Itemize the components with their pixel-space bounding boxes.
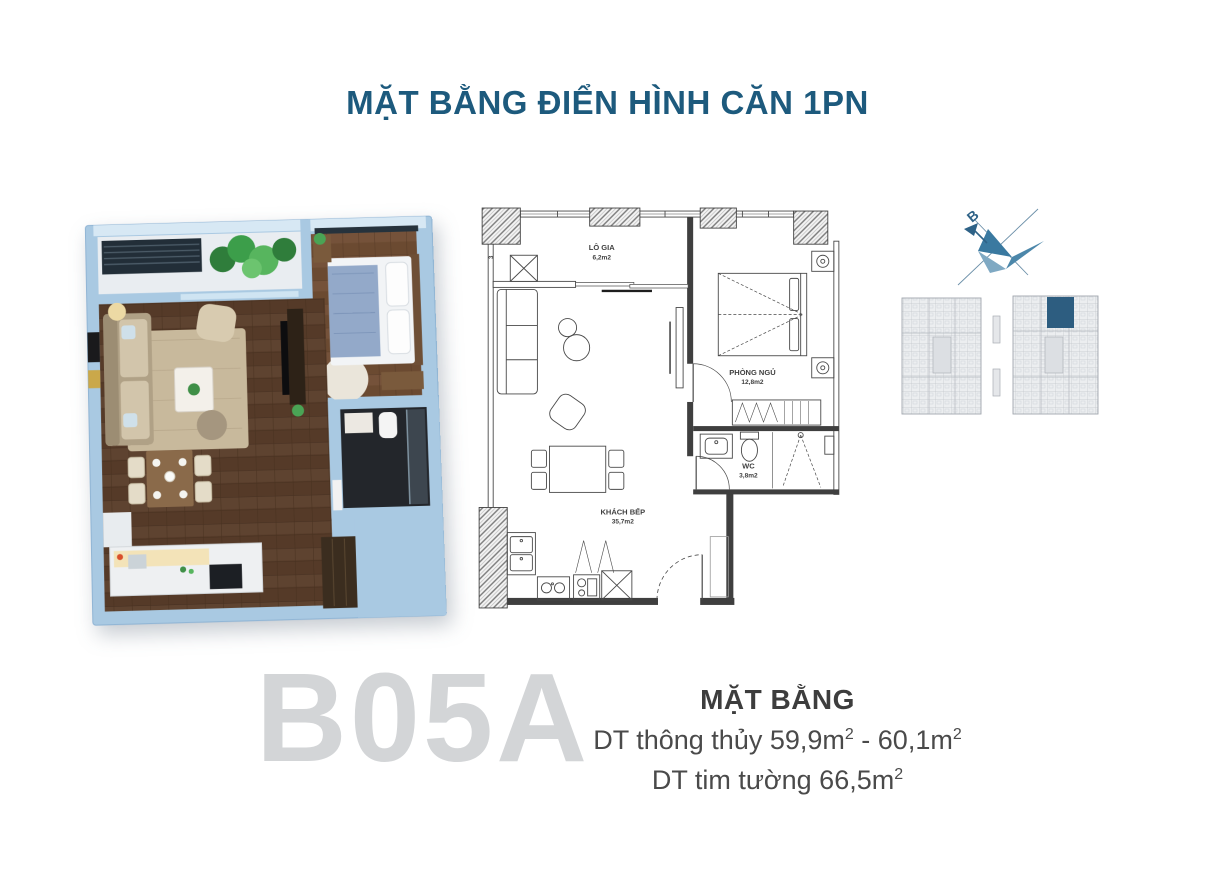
page-title: MẶT BẰNG ĐIỂN HÌNH CĂN 1PN [0, 84, 1215, 122]
north-arrow-icon: B [954, 203, 1046, 293]
logia-label: LÔ GIA [589, 243, 615, 252]
bedroom-label: PHÒNG NGỦ [729, 368, 775, 377]
tower-left [902, 298, 981, 414]
logia-area: 6,2m2 [592, 254, 611, 261]
wardrobe-2d [732, 400, 820, 425]
unit-code: B05A [248, 652, 598, 784]
wall-area-sup: 2 [894, 766, 903, 783]
summary-heading: MẶT BẰNG [575, 684, 980, 716]
floorplan-sheet: MẶT BẰNG ĐIỂN HÌNH CĂN 1PN [0, 0, 1215, 887]
kitchen-2d [507, 533, 632, 600]
living-area: 35,7m2 [612, 519, 634, 526]
highlighted-unit [1047, 297, 1074, 328]
compass: B [954, 203, 1046, 293]
lower-right-wall [355, 515, 447, 617]
living-room-3d [99, 297, 334, 612]
bed-2d [718, 251, 834, 378]
apartment-3d-svg [79, 206, 455, 633]
wc-label: WC [742, 461, 755, 470]
wc-area: 3,8m2 [739, 472, 758, 479]
living-label: KHÁCH BẾP [600, 507, 645, 517]
apartment-2d-svg: LÔ GIA 6,2m2 PHÒNG NGỦ 12,8m2 WC 3,8m2 K… [478, 203, 842, 617]
net-area-sup2: 2 [953, 726, 962, 743]
bathroom-3d [328, 397, 443, 519]
north-label: B [964, 207, 982, 226]
wc-fixtures [700, 432, 834, 488]
wardrobe-3d [321, 536, 358, 608]
net-area-line: DT thông thủy 59,9m2 - 60,1m2 [575, 725, 980, 756]
wall-area-line: DT tim tường 66,5m2 [575, 765, 980, 796]
sofa-2d [497, 289, 537, 394]
area-summary: MẶT BẰNG DT thông thủy 59,9m2 - 60,1m2 D… [575, 684, 980, 796]
apartment-2d-plan: LÔ GIA 6,2m2 PHÒNG NGỦ 12,8m2 WC 3,8m2 K… [478, 203, 842, 617]
wall-area-text: DT tim tường 66,5m [652, 765, 894, 795]
balcony-3d [93, 220, 304, 305]
tower-right [1013, 296, 1098, 414]
entry-door-arc [657, 555, 702, 600]
apartment-3d-render [79, 206, 455, 633]
key-plan-svg [895, 287, 1109, 431]
net-area-middle: - 60,1m [854, 725, 953, 755]
bedroom-area: 12,8m2 [741, 379, 763, 386]
net-area-text: DT thông thủy 59,9m [593, 725, 845, 755]
net-area-sup1: 2 [845, 726, 854, 743]
building-key-plan [895, 287, 1109, 431]
dining-set-2d [531, 446, 623, 492]
